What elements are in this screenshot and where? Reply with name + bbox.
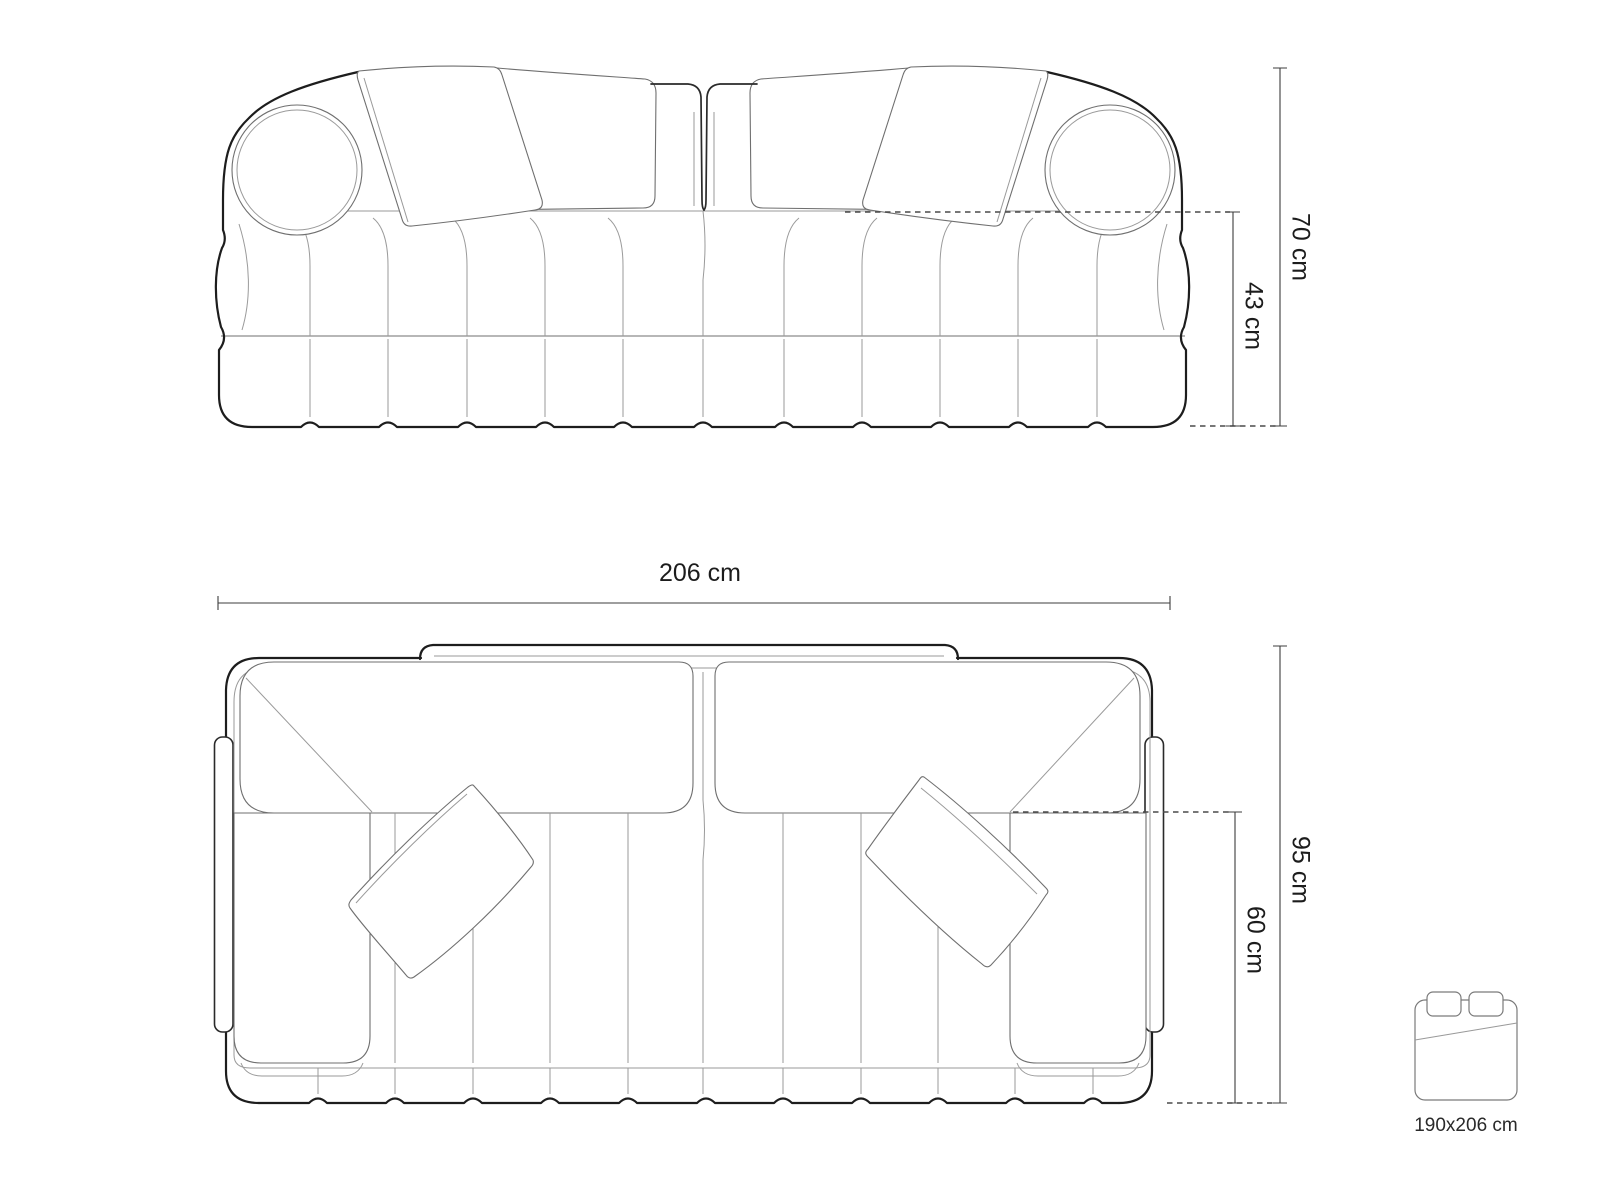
left-bolster-cushion [232, 105, 362, 235]
front-center-frame-inner-lines [694, 112, 714, 206]
top-left-pillow [349, 785, 533, 978]
sofa-front-view: 43 cm 70 cm [216, 66, 1315, 427]
top-left-seat-pad-front-line [241, 1063, 363, 1076]
dimension-seat-height: 43 cm [1226, 212, 1267, 426]
front-seat-channel-center [703, 211, 705, 336]
sleeping-area-icon: 190x206 cm [1414, 992, 1518, 1136]
seat-depth-label: 60 cm [1241, 906, 1269, 974]
top-left-seat-pad [234, 813, 370, 1063]
bed-pillow-left [1427, 992, 1461, 1016]
overall-width-dimension-line [218, 596, 1170, 610]
top-right-armrest-pad [1145, 737, 1164, 1032]
overall-depth-dimension-line [1273, 646, 1287, 1103]
bed-pillow-right [1469, 992, 1503, 1016]
diagram-canvas: 43 cm 70 cm [0, 0, 1600, 1200]
sofa-dimensions-diagram: 43 cm 70 cm [0, 0, 1600, 1200]
seat-depth-dimension-line [1228, 812, 1242, 1103]
top-right-seat-pad [1010, 813, 1146, 1063]
overall-height-dimension-line [1273, 68, 1287, 426]
sofa-top-view: 206 cm 95 cm 60 cm [215, 559, 1315, 1103]
sleeping-area-size-label: 190x206 cm [1414, 1115, 1518, 1136]
overall-depth-label: 95 cm [1286, 836, 1314, 904]
dimension-seat-depth: 60 cm [1228, 812, 1269, 1103]
seat-height-dimension-line [1226, 212, 1240, 426]
dimension-overall-width: 206 cm [218, 559, 1170, 610]
top-base-channel-stubs [318, 1068, 1093, 1094]
top-outline-front-scallop [259, 1099, 1119, 1104]
top-left-armrest-pad [215, 737, 234, 1032]
front-center-frame-right [704, 84, 757, 210]
overall-width-label: 206 cm [659, 559, 741, 587]
overall-height-label: 70 cm [1286, 213, 1314, 281]
front-right-arm-crease [1158, 224, 1167, 330]
dimension-overall-depth: 95 cm [1273, 646, 1314, 1103]
dimension-overall-height: 70 cm [1273, 68, 1314, 426]
front-center-frame-left [651, 84, 704, 210]
top-right-seat-pad-front-line [1017, 1063, 1139, 1076]
right-bolster-cushion [1045, 105, 1175, 235]
front-seat-channels-right [784, 218, 1112, 336]
front-base-channels [310, 339, 1097, 417]
front-left-arm-crease [239, 224, 248, 330]
front-seat-channels-left [295, 218, 623, 336]
seat-height-label: 43 cm [1239, 282, 1267, 350]
